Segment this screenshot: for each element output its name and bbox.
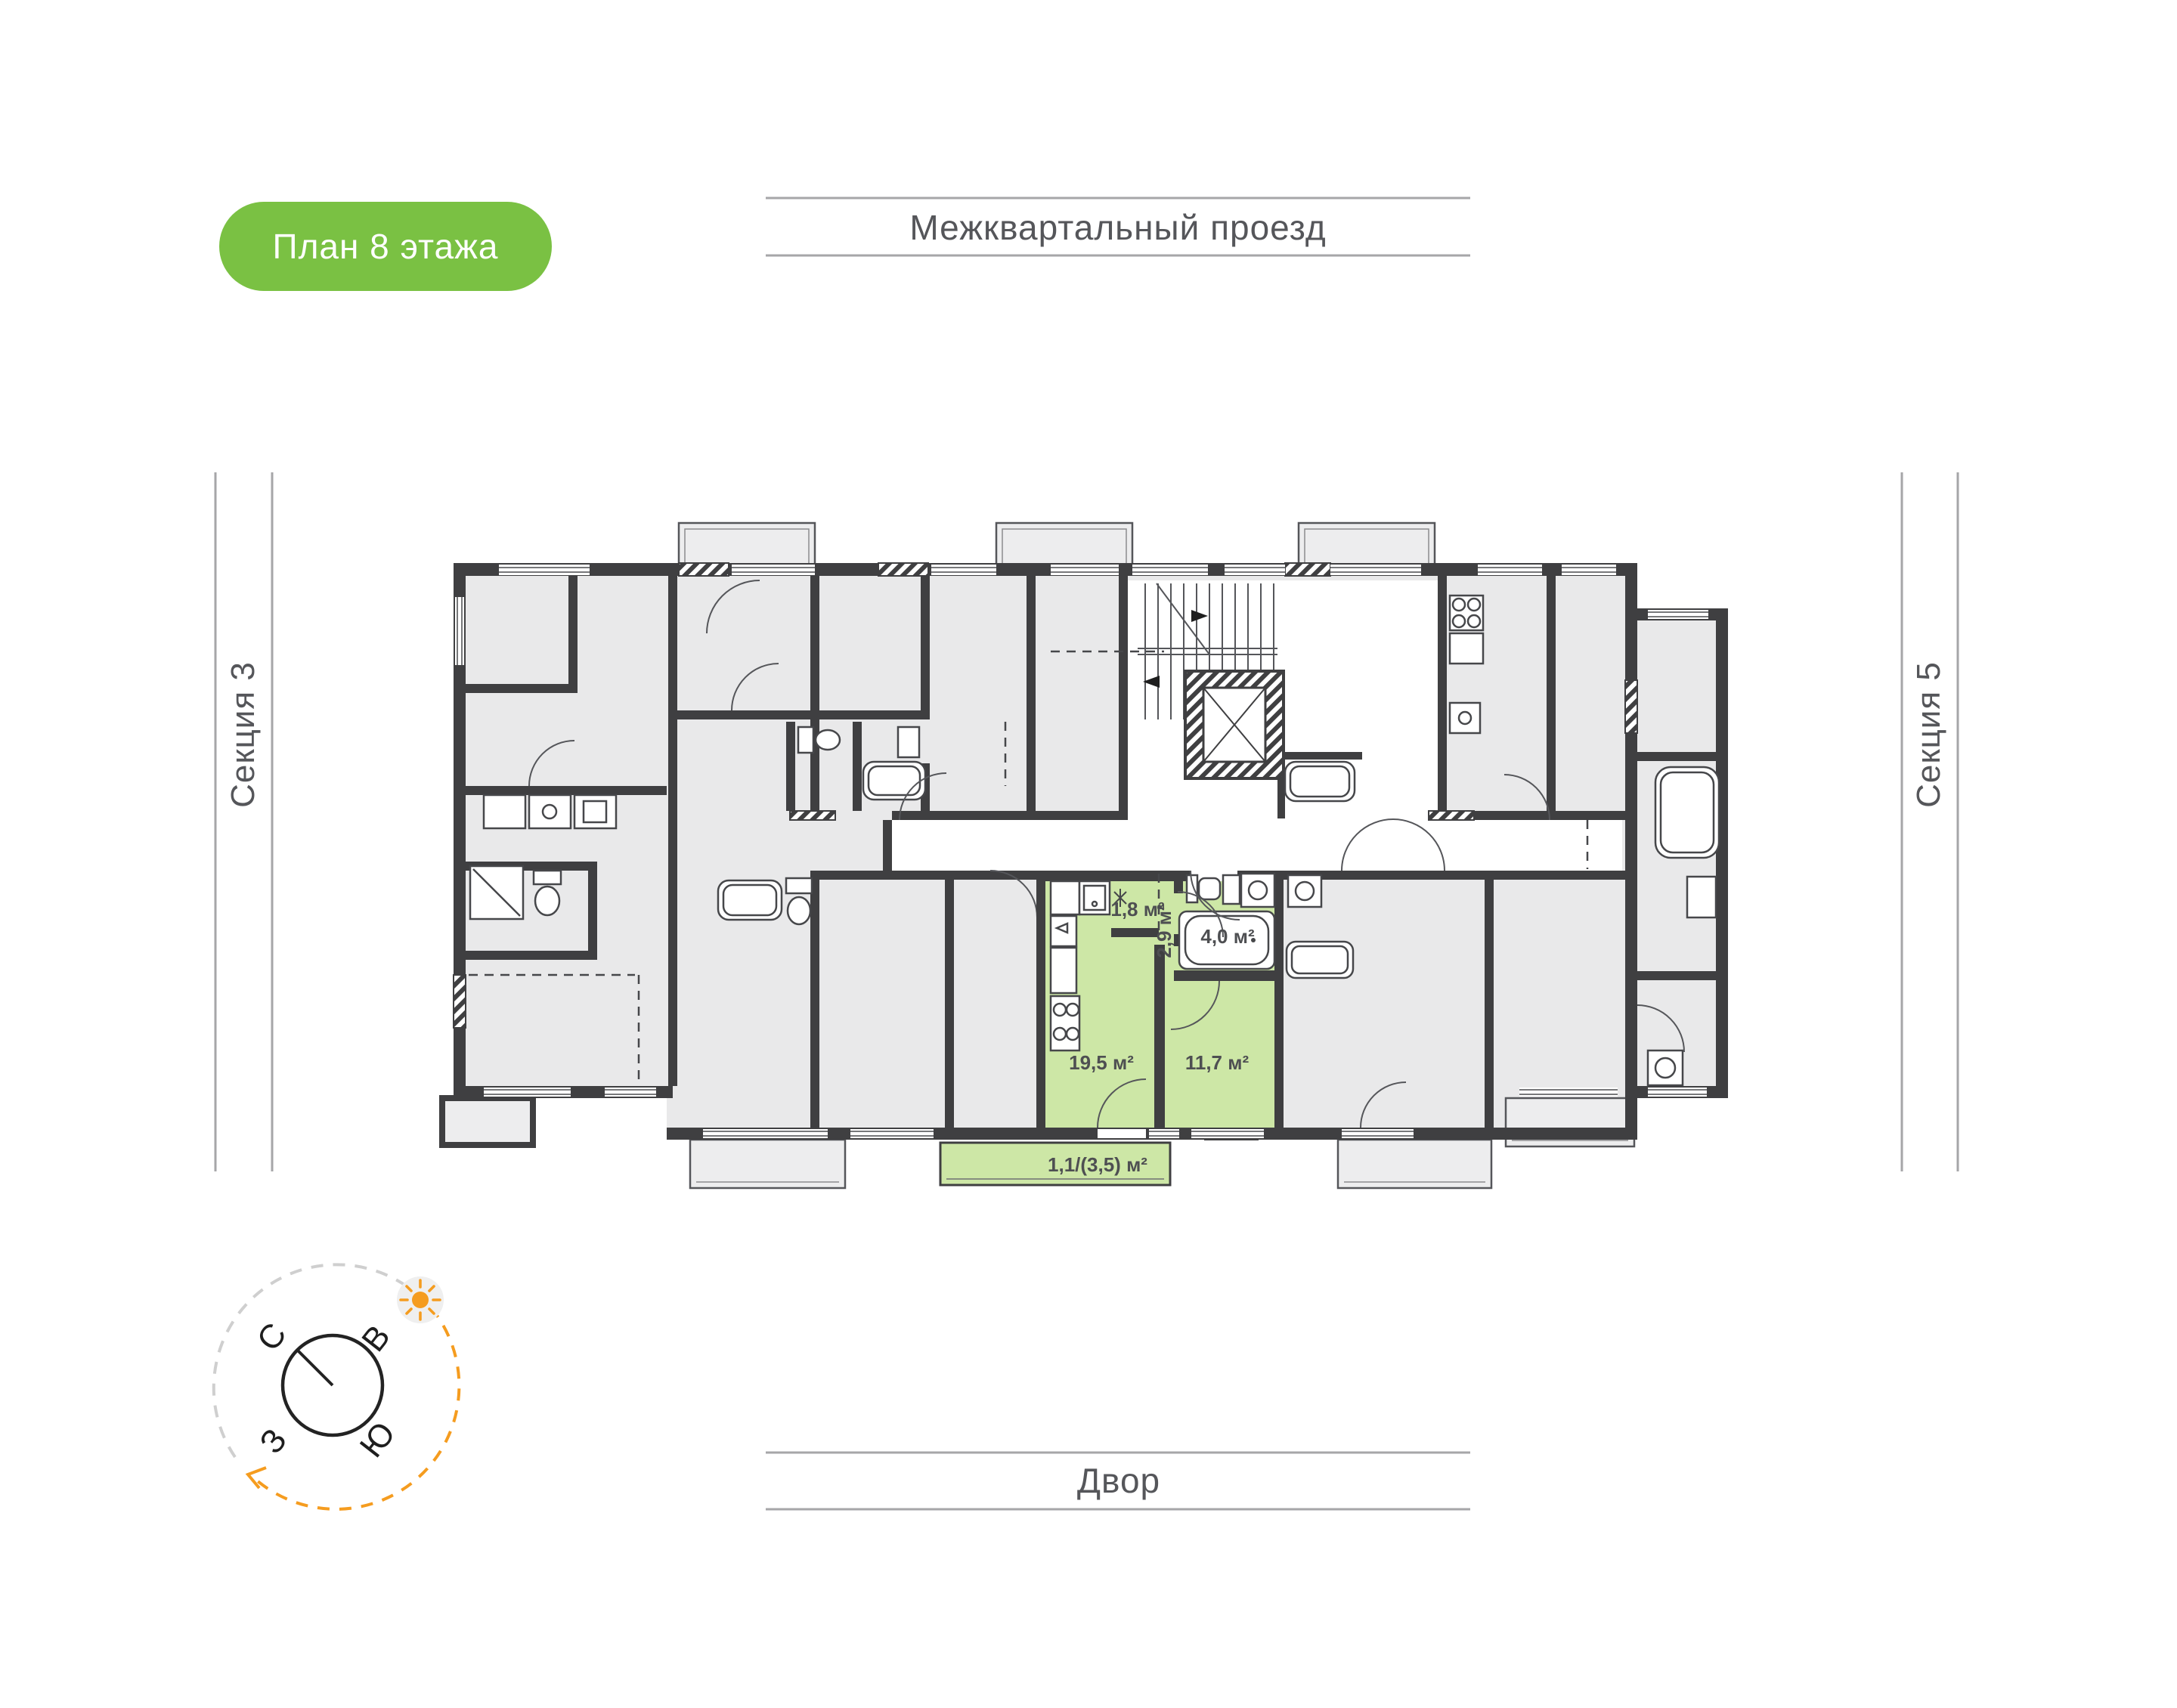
window	[1191, 1129, 1264, 1138]
compass-north-label: С	[249, 1316, 293, 1357]
window	[703, 1129, 828, 1138]
window	[484, 1088, 571, 1097]
compass-west-label: З	[252, 1422, 294, 1461]
window	[1519, 1088, 1618, 1097]
window	[1342, 1129, 1414, 1138]
window	[1648, 1088, 1707, 1097]
section-label-left: Секция 3	[215, 472, 272, 1171]
window	[1478, 565, 1542, 575]
window	[1149, 1129, 1179, 1138]
living-area-label: 19,5 м²	[1069, 1051, 1134, 1074]
window	[455, 597, 464, 665]
window	[605, 1088, 656, 1097]
window	[1132, 565, 1208, 575]
window	[1648, 610, 1708, 619]
window	[732, 565, 815, 575]
yard-label-bottom: Двор	[766, 1453, 1470, 1509]
section-label-right: Секция 5	[1902, 472, 1958, 1171]
window	[1562, 565, 1616, 575]
sun-icon	[397, 1276, 444, 1323]
window	[499, 565, 590, 575]
street-label-top: Межквартальный проезд	[766, 198, 1470, 255]
section-left-text: Секция 3	[225, 661, 262, 808]
section-right-text: Секция 5	[1910, 661, 1947, 808]
elevator	[1185, 671, 1284, 778]
window	[1330, 565, 1421, 575]
balcony-area-label: 1,1/(3,5) м²	[1048, 1153, 1147, 1176]
window	[850, 1129, 934, 1138]
bedroom-area-label: 11,7 м²	[1185, 1051, 1250, 1074]
floor-badge: План 8 этажа	[219, 202, 552, 291]
compass: С В З Ю	[214, 1264, 460, 1509]
yard-label-text: Двор	[1077, 1461, 1160, 1500]
street-label-top-text: Межквартальный проезд	[909, 208, 1326, 247]
floor-badge-label: План 8 этажа	[273, 227, 499, 266]
window	[931, 565, 996, 575]
floor-plan-page: План 8 этажа Межквартальный проезд Двор …	[0, 0, 2177, 1708]
window	[1051, 565, 1119, 575]
building-plan: 1,8 м² 2,9 м² 4,0 м² 19,5 м² 11,7 м² 1,1…	[442, 523, 1728, 1188]
bathroom-area-label: 4,0 м²	[1200, 925, 1255, 948]
corridor-area-label: 2,9 м²	[1153, 904, 1175, 958]
window	[1225, 565, 1285, 575]
